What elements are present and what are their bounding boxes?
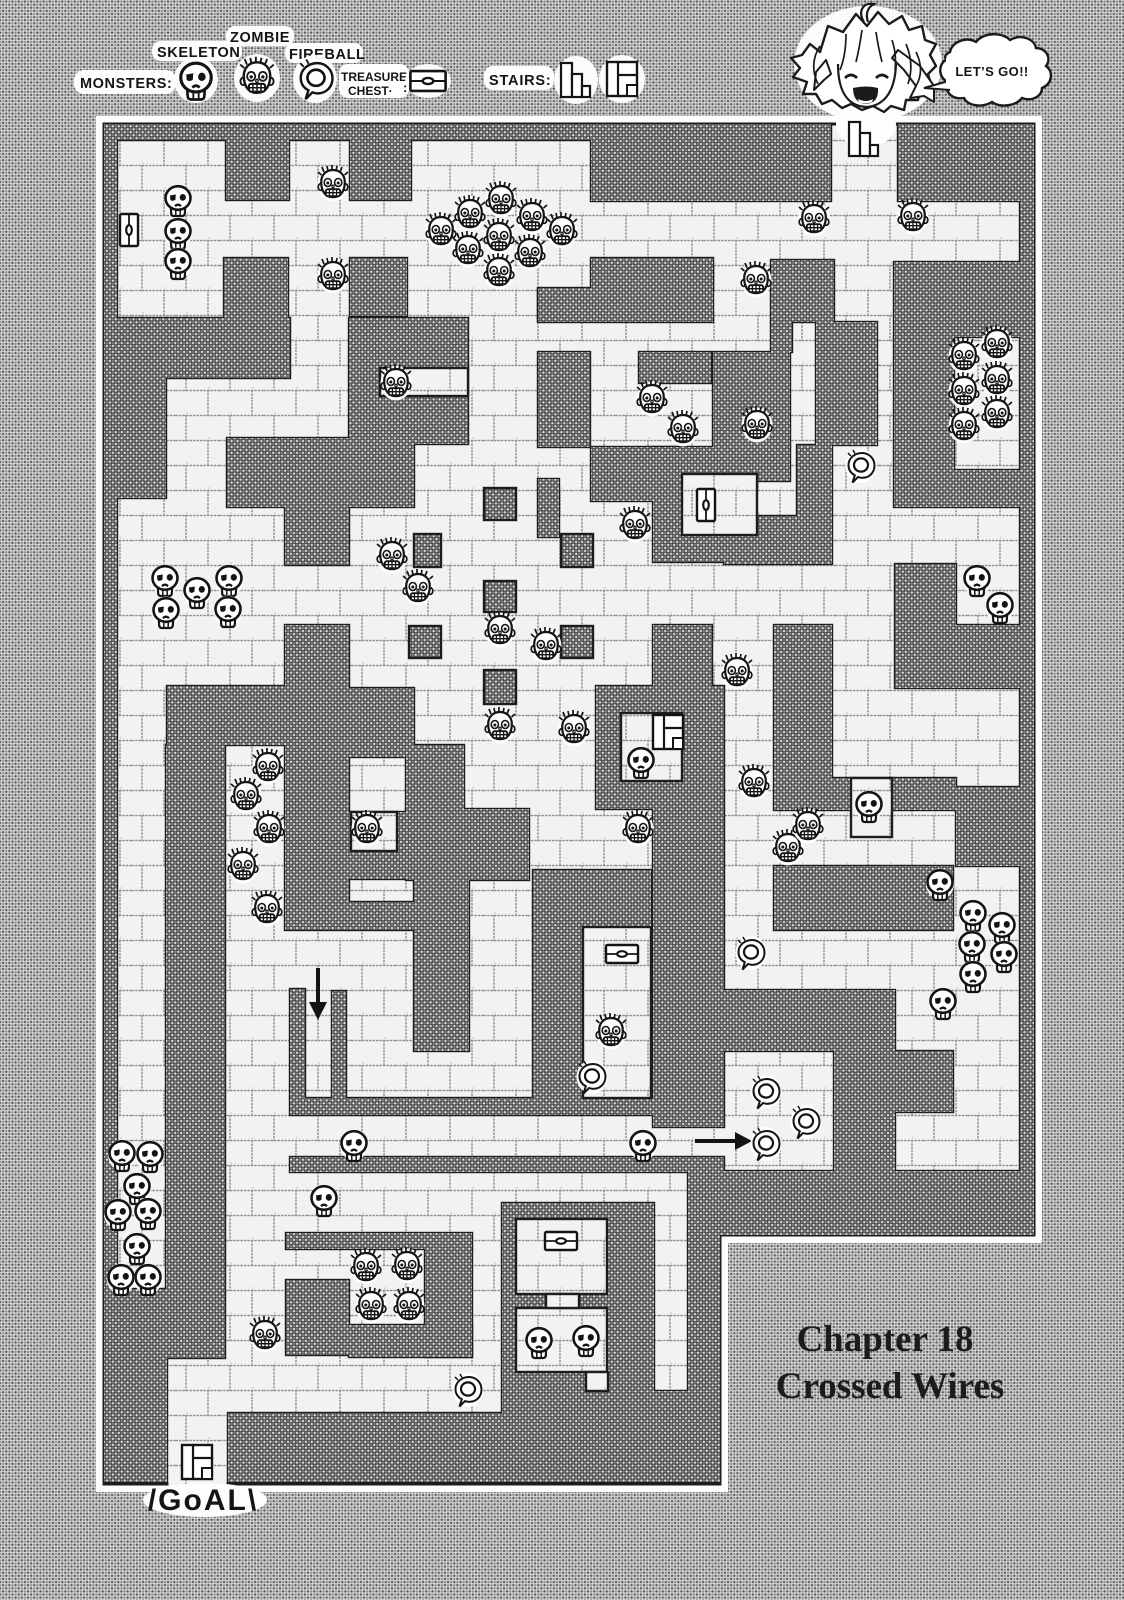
svg-text:/GoAL\: /GoAL\ [148, 1484, 258, 1517]
svg-text:ZOMBIE: ZOMBIE [230, 30, 290, 46]
svg-text:CHEST·: CHEST· [348, 84, 393, 98]
svg-text:MONSTERS:: MONSTERS: [80, 76, 172, 92]
svg-text:Crossed Wires: Crossed Wires [776, 1366, 1005, 1407]
svg-text:TREASURE·: TREASURE· [341, 70, 411, 84]
svg-text:STAIRS:: STAIRS: [489, 73, 552, 89]
svg-text:LET’S GO!!: LET’S GO!! [955, 64, 1028, 79]
svg-text:Chapter 18: Chapter 18 [796, 1319, 973, 1360]
